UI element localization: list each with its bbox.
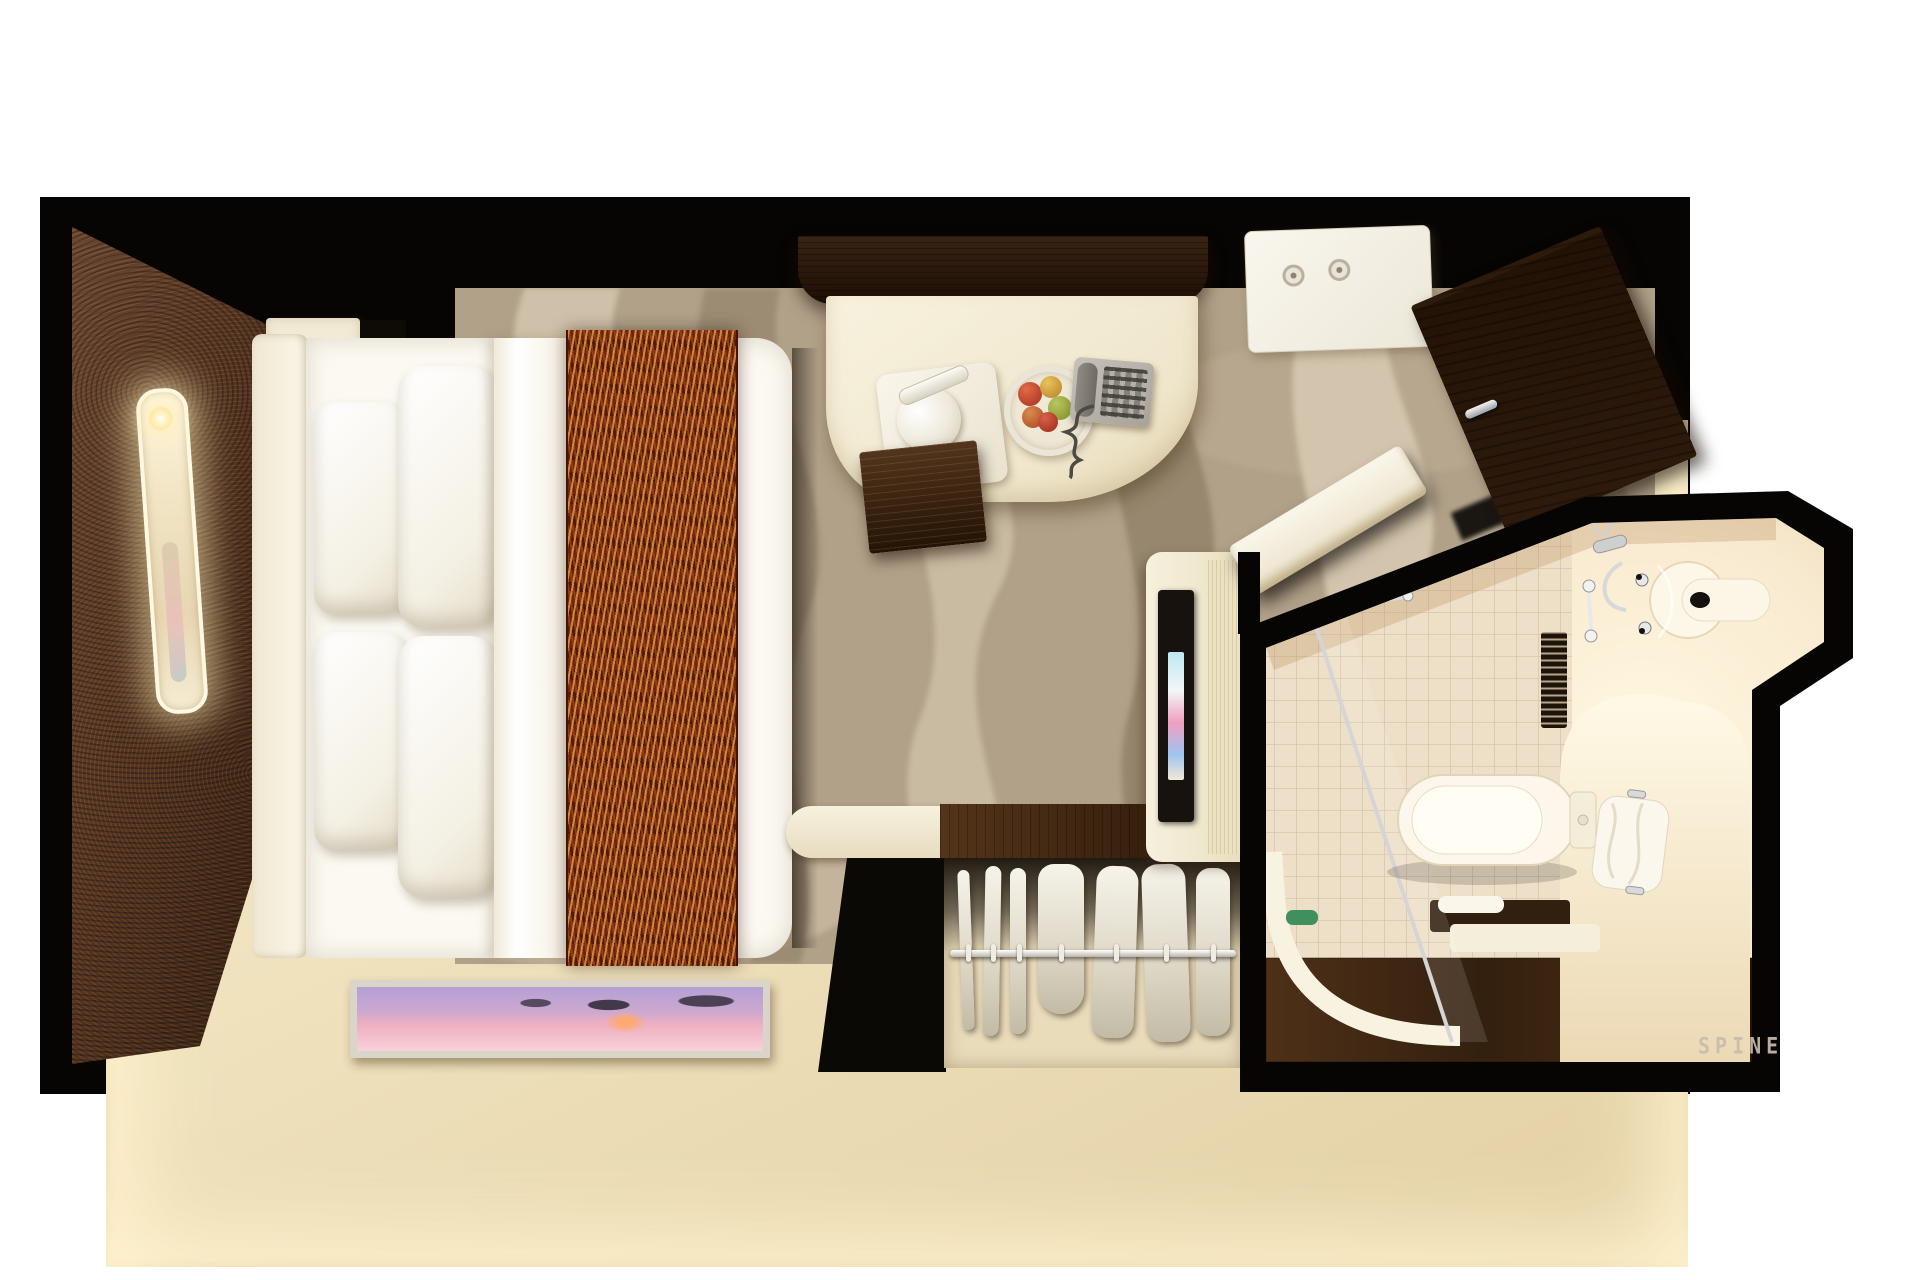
entry-ceiling-panel <box>1244 225 1434 353</box>
bed-runner <box>566 330 738 966</box>
sprinkler-head <box>1282 264 1305 287</box>
closet-counter-end <box>786 806 956 858</box>
hanger-hook <box>991 944 996 962</box>
open-closet <box>944 858 1242 1068</box>
toilet-seat <box>1412 786 1542 854</box>
hanger-hook <box>1114 944 1119 962</box>
hanger-hook <box>1017 944 1022 962</box>
telephone-cord <box>1052 402 1098 480</box>
wall-shelf <box>798 236 1208 304</box>
tv-screen <box>1168 652 1184 780</box>
mirror-reflection <box>161 542 187 683</box>
sunset-artwork <box>350 980 770 1058</box>
vent-grille <box>1541 632 1567 728</box>
hanger-hook <box>1059 944 1064 962</box>
stool <box>859 440 987 554</box>
watermark: SPINE <box>1698 1032 1788 1066</box>
pillow <box>398 366 496 628</box>
pillow <box>314 632 406 850</box>
toiletry-bottle <box>1286 910 1318 925</box>
door-handle <box>1464 398 1499 420</box>
towel-bar-mount <box>1585 630 1597 642</box>
hanger-hook <box>1164 944 1169 962</box>
hanger-hook <box>966 944 971 962</box>
bathroom <box>1230 480 1862 1095</box>
hanger-hook <box>1211 944 1216 962</box>
stateroom-floorplan-rendering: SPINE <box>0 0 1920 1280</box>
bed <box>306 338 792 958</box>
apple <box>1040 376 1062 398</box>
flush-button <box>1578 815 1588 825</box>
headboard <box>252 334 308 958</box>
towel-hook <box>1627 789 1646 798</box>
towel-bar-mount <box>1583 580 1595 592</box>
telephone-keypad <box>1100 366 1148 420</box>
bath-step <box>1450 924 1600 952</box>
rolled-towel <box>1438 896 1504 913</box>
basin-drain <box>1690 592 1710 608</box>
sprinkler-head <box>1328 259 1351 282</box>
television <box>1158 590 1194 822</box>
apple <box>1018 382 1042 406</box>
pillow <box>314 402 406 614</box>
hanging-garment <box>1038 864 1084 1014</box>
duvet-fold <box>494 338 570 958</box>
bed-edge-shadow <box>792 348 818 948</box>
mirror-light <box>148 406 174 432</box>
towel-hook <box>1626 886 1645 895</box>
pillow <box>398 636 496 898</box>
